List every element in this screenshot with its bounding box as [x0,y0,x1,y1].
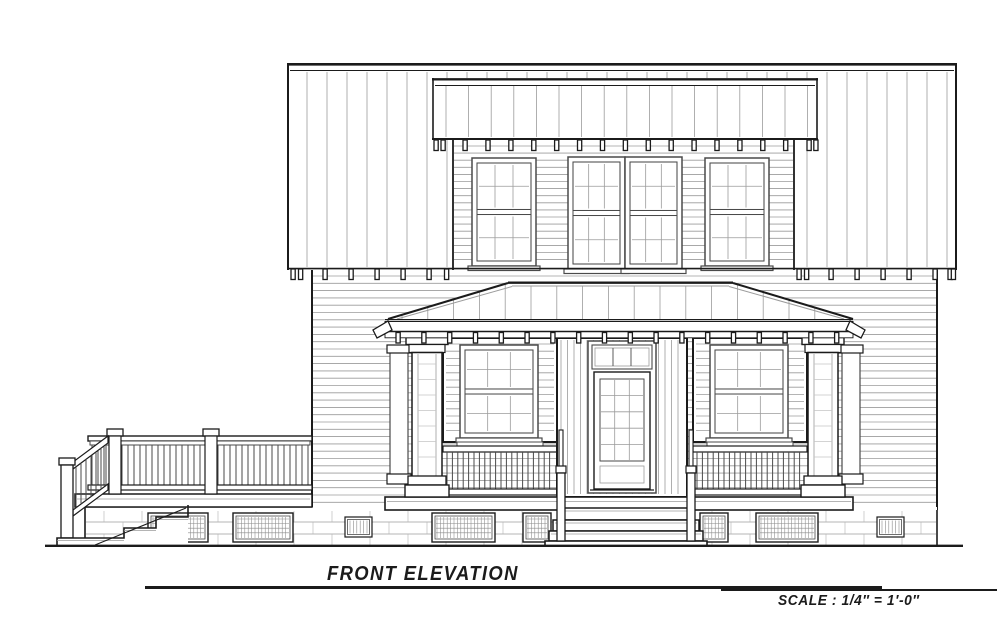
upper-window-left [468,158,540,271]
porch-column-left [387,338,449,498]
vent-slot-right [877,517,904,537]
dormer-roof [432,78,818,140]
upper-window-right [701,158,773,271]
first-floor-window-left-bay-window [456,345,542,443]
vent-slot-left [345,517,372,537]
upper-window-center-right [621,157,686,274]
entry-door-bay [557,338,687,497]
vent-under-deck-2 [233,513,293,542]
deck-newel-1 [107,429,123,494]
upper-window-center-left [564,157,629,274]
elevation-drawing [0,0,1000,627]
porch [373,282,865,546]
porch-column-right [801,338,863,498]
vent-porch-left-2 [523,513,551,542]
first-floor-window-right-bay-window [706,345,792,443]
scale-note: SCALE : 1/4″ = 1′-0″ [778,593,920,609]
scale-overline [721,589,997,591]
drawing-sheet: FRONT ELEVATION SCALE : 1/4″ = 1′-0″ [0,0,1000,627]
transom-window [592,345,652,369]
foundation [85,507,937,546]
vent-porch-right-2 [756,513,818,542]
entry-door [590,372,654,490]
deck-newel-2 [203,429,219,494]
drawing-title: FRONT ELEVATION [327,563,519,586]
vent-porch-right-1 [700,513,728,542]
deck-railing [88,429,312,494]
vent-porch-left-1 [432,513,495,542]
